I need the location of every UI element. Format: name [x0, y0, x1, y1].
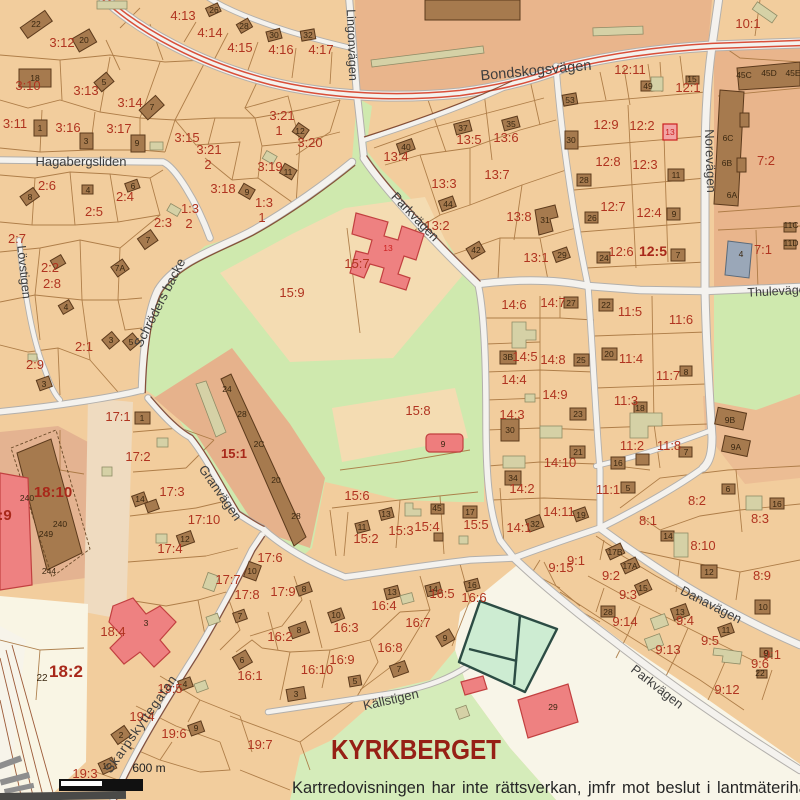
svg-text:17:1: 17:1 — [105, 409, 130, 424]
svg-text:8: 8 — [297, 625, 302, 635]
svg-text:8:10: 8:10 — [690, 538, 715, 553]
svg-text:3:20: 3:20 — [297, 135, 322, 150]
svg-text:30: 30 — [269, 30, 279, 40]
svg-text:37: 37 — [458, 123, 468, 133]
svg-text:22: 22 — [31, 19, 41, 29]
svg-text:13:1: 13:1 — [523, 250, 548, 265]
svg-text:12: 12 — [295, 126, 305, 136]
svg-text:3:13: 3:13 — [73, 83, 98, 98]
svg-text:27: 27 — [566, 298, 576, 308]
svg-text:3:17: 3:17 — [106, 121, 131, 136]
svg-text:15:4: 15:4 — [414, 519, 439, 534]
svg-text:18: 18 — [30, 73, 40, 83]
svg-text:10: 10 — [758, 602, 768, 612]
svg-text:15:6: 15:6 — [344, 488, 369, 503]
svg-text:2:6: 2:6 — [38, 178, 56, 193]
svg-text:3B: 3B — [503, 352, 514, 362]
svg-text:8:9: 8:9 — [753, 568, 771, 583]
svg-text:24: 24 — [222, 384, 232, 394]
svg-text:4: 4 — [183, 679, 188, 689]
svg-text:3:21: 3:21 — [196, 142, 221, 157]
svg-text:244: 244 — [42, 566, 56, 576]
svg-text:7: 7 — [238, 611, 243, 621]
svg-text:16:7: 16:7 — [405, 615, 430, 630]
svg-text:6: 6 — [726, 484, 731, 494]
svg-text:2:8: 2:8 — [43, 276, 61, 291]
svg-text:3:19: 3:19 — [257, 159, 282, 174]
svg-text:26: 26 — [587, 213, 597, 223]
svg-text:12:5: 12:5 — [639, 243, 667, 259]
svg-text:9: 9 — [672, 209, 677, 219]
svg-text:14:2: 14:2 — [509, 481, 534, 496]
svg-text:240: 240 — [20, 493, 34, 503]
svg-text:12:6: 12:6 — [608, 244, 633, 259]
svg-text:7: 7 — [684, 447, 689, 457]
svg-text:3: 3 — [144, 618, 149, 628]
svg-text:4: 4 — [64, 302, 69, 312]
svg-text:15:3: 15:3 — [388, 523, 413, 538]
svg-text:13: 13 — [665, 127, 675, 137]
svg-text:14: 14 — [428, 584, 438, 594]
svg-text:9A: 9A — [731, 442, 742, 452]
svg-text:13:6: 13:6 — [493, 130, 518, 145]
svg-text:16: 16 — [613, 458, 623, 468]
svg-text:45C: 45C — [736, 70, 752, 80]
svg-text:19:3: 19:3 — [72, 766, 97, 781]
svg-text:8:2: 8:2 — [688, 493, 706, 508]
svg-text:3: 3 — [294, 689, 299, 699]
svg-text:17:6: 17:6 — [257, 550, 282, 565]
svg-text:3:12: 3:12 — [49, 35, 74, 50]
svg-text:1:3: 1:3 — [181, 201, 199, 216]
svg-text:10: 10 — [247, 566, 257, 576]
svg-text:14:11: 14:11 — [543, 504, 575, 519]
svg-text:9: 9 — [443, 633, 448, 643]
svg-text:1:3: 1:3 — [255, 195, 273, 210]
svg-text:17:9: 17:9 — [270, 584, 295, 599]
svg-text:2:3: 2:3 — [154, 215, 172, 230]
svg-text:30: 30 — [566, 135, 576, 145]
svg-text:16:3: 16:3 — [333, 620, 358, 635]
svg-text:17:4: 17:4 — [157, 541, 182, 556]
svg-text:2:1: 2:1 — [75, 339, 93, 354]
svg-text:19:7: 19:7 — [247, 737, 272, 752]
svg-text:12:11: 12:11 — [614, 62, 646, 77]
svg-text:17:7: 17:7 — [215, 572, 240, 587]
svg-text:3: 3 — [84, 136, 89, 146]
svg-text:11:1: 11:1 — [596, 482, 620, 497]
svg-text:12:3: 12:3 — [632, 157, 657, 172]
svg-text:18:10: 18:10 — [34, 484, 72, 501]
svg-text:13: 13 — [383, 243, 393, 253]
svg-text:9: 9 — [245, 187, 250, 197]
svg-text:11C: 11C — [784, 220, 799, 230]
svg-text:14:1: 14:1 — [506, 520, 531, 535]
svg-text:15:1: 15:1 — [221, 446, 247, 461]
svg-text:13:7: 13:7 — [484, 167, 509, 182]
svg-text:19: 19 — [576, 510, 586, 520]
svg-text:44: 44 — [443, 199, 453, 209]
svg-text:45E: 45E — [785, 68, 800, 78]
svg-text:5: 5 — [353, 676, 358, 686]
svg-text:Hagabergsliden: Hagabergsliden — [35, 154, 126, 169]
svg-text:10: 10 — [331, 610, 341, 620]
svg-text:3:16: 3:16 — [55, 120, 80, 135]
svg-text:6: 6 — [131, 181, 136, 191]
svg-text:17A: 17A — [622, 561, 637, 571]
svg-text:4:15: 4:15 — [227, 40, 252, 55]
svg-text:11: 11 — [358, 522, 367, 532]
svg-text:20: 20 — [604, 349, 614, 359]
svg-text:9: 9 — [764, 648, 769, 658]
svg-text:12:9: 12:9 — [593, 117, 618, 132]
svg-text:15:9: 15:9 — [279, 285, 304, 300]
svg-text:11:2: 11:2 — [620, 438, 644, 453]
svg-text:31: 31 — [540, 215, 550, 225]
svg-text:17:3: 17:3 — [159, 484, 184, 499]
svg-text:16:8: 16:8 — [377, 640, 402, 655]
svg-text:11: 11 — [722, 625, 731, 635]
svg-text:12:8: 12:8 — [595, 154, 620, 169]
svg-text:17:2: 17:2 — [125, 449, 150, 464]
svg-text:3:14: 3:14 — [117, 95, 142, 110]
svg-text:2:9: 2:9 — [26, 357, 44, 372]
svg-text:45D: 45D — [761, 68, 777, 78]
svg-text:45: 45 — [432, 503, 442, 513]
svg-text:14:3: 14:3 — [499, 407, 524, 422]
svg-text:240: 240 — [53, 519, 67, 529]
svg-text:16:4: 16:4 — [371, 598, 396, 613]
svg-text:14:9: 14:9 — [542, 387, 567, 402]
svg-text:34: 34 — [508, 473, 518, 483]
svg-text:Thulevägen: Thulevägen — [747, 282, 800, 299]
svg-text:17:8: 17:8 — [234, 587, 259, 602]
svg-text:4:17: 4:17 — [308, 42, 333, 57]
svg-text:17:10: 17:10 — [188, 512, 221, 527]
svg-text:11:6: 11:6 — [669, 312, 693, 327]
svg-text:35: 35 — [506, 119, 516, 129]
svg-text:8: 8 — [684, 367, 689, 377]
svg-text:24: 24 — [599, 253, 609, 263]
svg-text:20: 20 — [79, 35, 89, 45]
svg-text:28: 28 — [579, 175, 589, 185]
svg-text:29: 29 — [548, 702, 558, 712]
svg-text:14:7: 14:7 — [540, 295, 565, 310]
svg-text:16: 16 — [772, 499, 782, 509]
svg-text:15: 15 — [638, 583, 648, 593]
svg-text:3:18: 3:18 — [210, 181, 235, 196]
svg-text:15:2: 15:2 — [353, 531, 378, 546]
svg-text:Norevägen: Norevägen — [702, 129, 719, 193]
svg-text:29: 29 — [557, 250, 567, 260]
svg-text:7: 7 — [146, 235, 151, 245]
svg-text:3: 3 — [109, 335, 114, 345]
svg-text:12:2: 12:2 — [629, 118, 654, 133]
svg-text:9B: 9B — [725, 415, 736, 425]
svg-text:9:14: 9:14 — [612, 614, 637, 629]
svg-text:3:11: 3:11 — [3, 116, 27, 131]
svg-text:12: 12 — [180, 534, 190, 544]
svg-text:26: 26 — [209, 5, 219, 15]
svg-text:16:1: 16:1 — [237, 668, 262, 683]
svg-text:4:13: 4:13 — [170, 8, 195, 23]
svg-text:14:10: 14:10 — [544, 455, 577, 470]
svg-text:9:13: 9:13 — [655, 642, 680, 657]
svg-text:23: 23 — [573, 409, 583, 419]
svg-text:53: 53 — [565, 95, 575, 105]
svg-text:8:3: 8:3 — [751, 511, 769, 526]
svg-text:12:7: 12:7 — [600, 199, 625, 214]
svg-text:7: 7 — [676, 250, 681, 260]
svg-text:9:2: 9:2 — [602, 568, 620, 583]
svg-text:2:7: 2:7 — [8, 231, 26, 246]
svg-text:4: 4 — [86, 185, 91, 195]
svg-text:19:6: 19:6 — [161, 726, 186, 741]
svg-text:1: 1 — [275, 123, 282, 138]
svg-text:28: 28 — [237, 409, 247, 419]
svg-text:13:8: 13:8 — [506, 209, 531, 224]
svg-text:15:8: 15:8 — [405, 403, 430, 418]
svg-text:9:3: 9:3 — [619, 587, 637, 602]
svg-text:14:8: 14:8 — [540, 352, 565, 367]
svg-text:12: 12 — [704, 567, 714, 577]
svg-text:4: 4 — [739, 249, 744, 259]
svg-text:18:2: 18:2 — [49, 662, 83, 681]
svg-text:14:6: 14:6 — [501, 297, 526, 312]
svg-text:KYRKBERGET: KYRKBERGET — [331, 734, 501, 765]
svg-text:4:14: 4:14 — [197, 25, 222, 40]
svg-text:12:4: 12:4 — [636, 205, 661, 220]
svg-text:15:5: 15:5 — [463, 517, 488, 532]
svg-text:6B: 6B — [722, 158, 733, 168]
svg-text:7:2: 7:2 — [757, 153, 775, 168]
svg-text:4:16: 4:16 — [268, 42, 293, 57]
svg-text:32: 32 — [303, 30, 313, 40]
svg-text:13: 13 — [381, 509, 391, 519]
svg-text:30: 30 — [505, 425, 515, 435]
svg-text:18: 18 — [635, 403, 645, 413]
svg-text:7: 7 — [397, 664, 402, 674]
svg-text:28: 28 — [603, 607, 613, 617]
svg-text:249: 249 — [39, 529, 53, 539]
svg-text:8:1: 8:1 — [639, 513, 657, 528]
svg-text:22: 22 — [755, 668, 765, 678]
svg-text:2: 2 — [204, 157, 211, 172]
svg-text:16:6: 16:6 — [461, 590, 486, 605]
svg-text:13:5: 13:5 — [456, 132, 481, 147]
svg-text:11:7: 11:7 — [656, 368, 680, 383]
svg-text:5: 5 — [102, 77, 107, 87]
svg-text:Lingonvägen: Lingonvägen — [344, 9, 360, 81]
svg-text:15: 15 — [687, 74, 697, 84]
svg-text:8: 8 — [302, 584, 307, 594]
svg-text:1: 1 — [38, 123, 43, 133]
svg-text:11: 11 — [284, 167, 293, 177]
svg-text:1: 1 — [140, 413, 145, 423]
svg-text:40: 40 — [401, 142, 411, 152]
svg-text:9: 9 — [194, 723, 199, 733]
svg-text::9: :9 — [0, 507, 12, 524]
svg-text:2:2: 2:2 — [41, 260, 59, 275]
svg-text:49: 49 — [643, 81, 653, 91]
svg-text:7A: 7A — [115, 263, 126, 273]
svg-text:8: 8 — [28, 192, 33, 202]
svg-text:14: 14 — [135, 494, 145, 504]
svg-text:3: 3 — [42, 379, 47, 389]
svg-text:9:15: 9:15 — [548, 560, 573, 575]
svg-text:9: 9 — [441, 439, 446, 449]
svg-text:21: 21 — [573, 447, 583, 457]
svg-text:15:7: 15:7 — [344, 256, 369, 271]
svg-text:22: 22 — [601, 300, 611, 310]
svg-text:25: 25 — [576, 355, 586, 365]
svg-text:2: 2 — [185, 216, 192, 231]
svg-text:2C: 2C — [254, 439, 265, 449]
svg-text:22: 22 — [36, 673, 48, 684]
svg-text:10:1: 10:1 — [735, 16, 760, 31]
svg-text:16:10: 16:10 — [301, 662, 334, 677]
svg-text:11D: 11D — [784, 238, 799, 248]
svg-text:Kartredovisningen har inte rät: Kartredovisningen har inte rättsverkan, … — [292, 779, 800, 797]
svg-text:14: 14 — [663, 531, 673, 541]
svg-text:3:21: 3:21 — [269, 108, 294, 123]
svg-text:600 m: 600 m — [132, 761, 165, 775]
svg-text:20: 20 — [271, 475, 281, 485]
svg-text:16:2: 16:2 — [267, 629, 292, 644]
svg-text:28: 28 — [239, 21, 249, 31]
svg-text:11:8: 11:8 — [657, 438, 681, 453]
svg-text:13: 13 — [387, 587, 397, 597]
svg-text:13: 13 — [675, 607, 685, 617]
svg-text:7:1: 7:1 — [754, 242, 772, 257]
svg-text:6C: 6C — [723, 133, 734, 143]
svg-text:9:5: 9:5 — [701, 633, 719, 648]
svg-text:7: 7 — [150, 102, 155, 112]
svg-text:11: 11 — [672, 170, 681, 180]
svg-text:2:5: 2:5 — [85, 204, 103, 219]
svg-text:42: 42 — [471, 245, 481, 255]
svg-text:11:5: 11:5 — [618, 304, 642, 319]
svg-text:17: 17 — [465, 507, 475, 517]
svg-text:18:4: 18:4 — [100, 624, 125, 639]
svg-text:5: 5 — [626, 483, 631, 493]
svg-text:16: 16 — [467, 580, 477, 590]
svg-text:13:3: 13:3 — [431, 176, 456, 191]
svg-text:28: 28 — [291, 511, 301, 521]
svg-text:17B: 17B — [607, 547, 622, 557]
svg-text:6A: 6A — [727, 190, 738, 200]
svg-text:9: 9 — [135, 138, 140, 148]
svg-text:6: 6 — [240, 655, 245, 665]
svg-text:14:4: 14:4 — [501, 372, 526, 387]
svg-text:14:5: 14:5 — [512, 349, 537, 364]
svg-text:9:12: 9:12 — [714, 682, 739, 697]
svg-text:11:4: 11:4 — [619, 351, 643, 366]
svg-text:2:4: 2:4 — [116, 189, 134, 204]
svg-text:32: 32 — [530, 519, 540, 529]
svg-text:1: 1 — [258, 210, 265, 225]
